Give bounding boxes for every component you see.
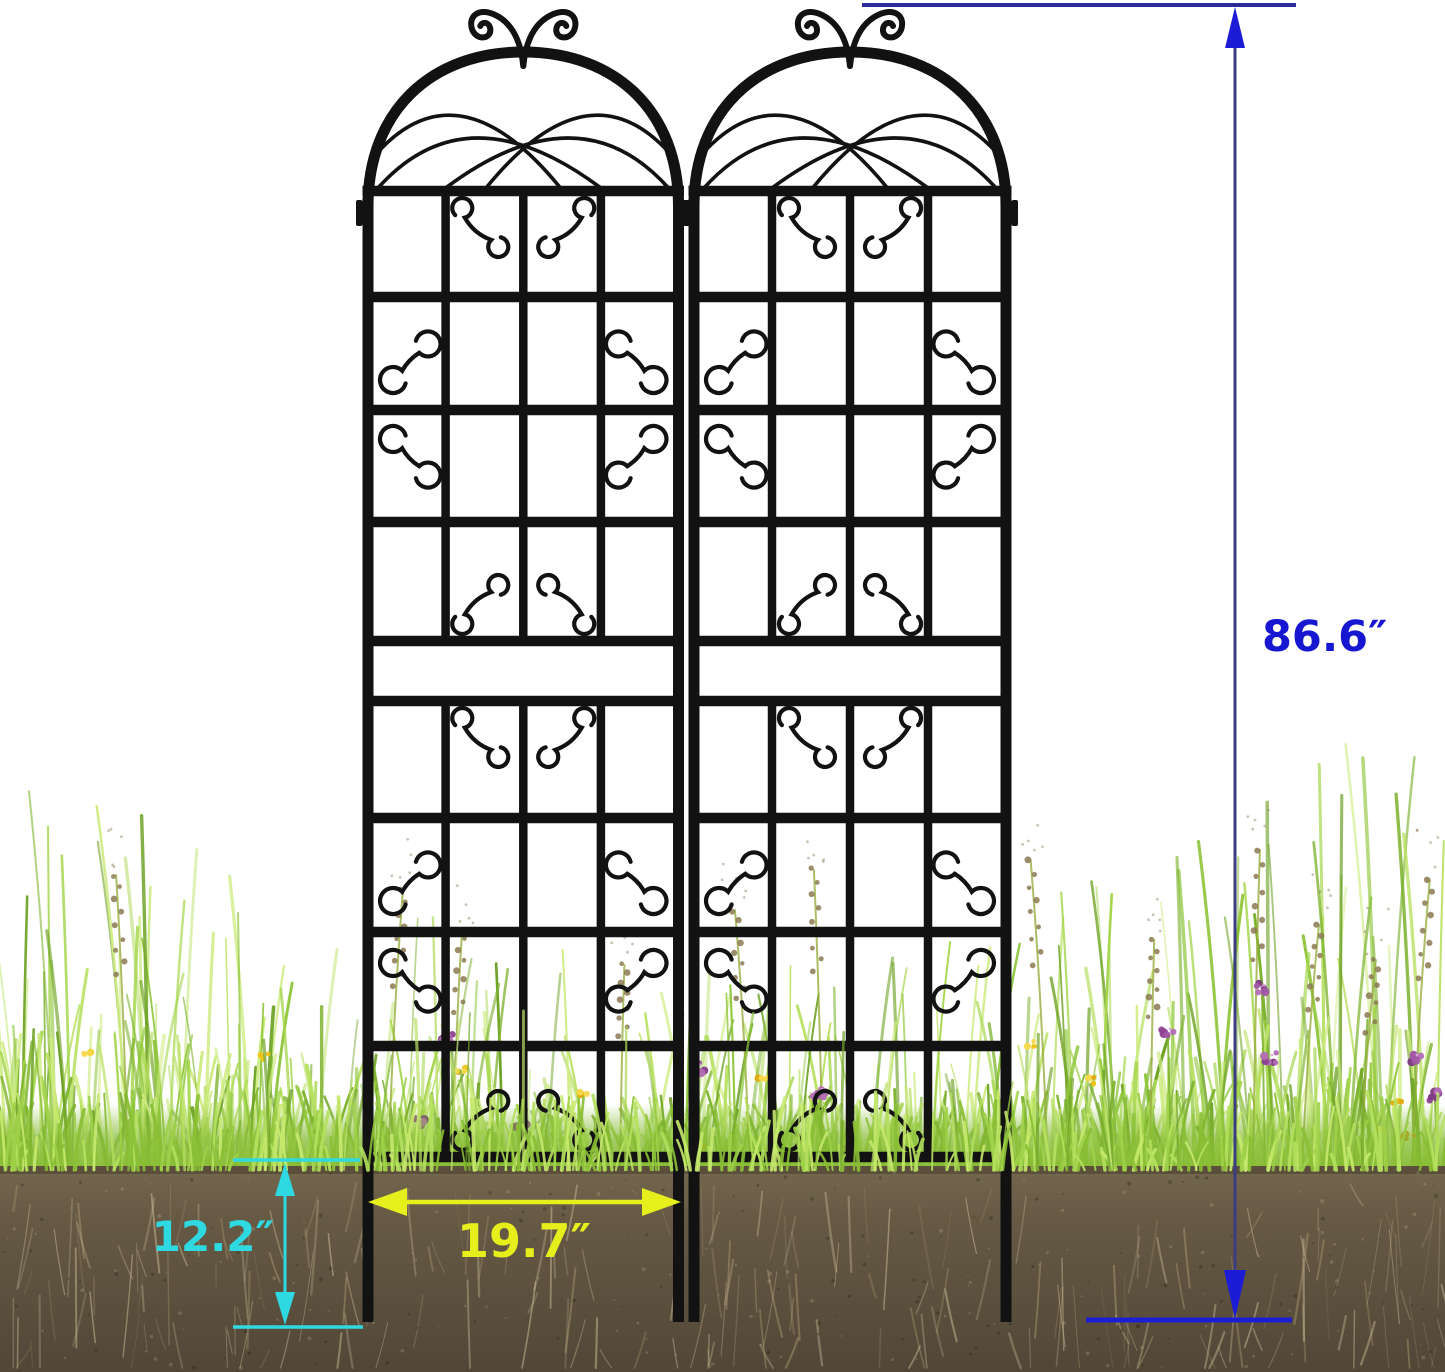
depth-dimension-label: 12.2″	[152, 1212, 274, 1261]
product-dimension-diagram: 86.6″ 12.2″ 19.7″	[0, 0, 1445, 1372]
width-dimension-label: 19.7″	[457, 1214, 591, 1268]
height-dimension-label: 86.6″	[1262, 612, 1387, 662]
connector-hook	[682, 200, 689, 226]
connector-hook	[356, 200, 363, 226]
soil-layer	[0, 1166, 1445, 1372]
scene-canvas	[0, 0, 1445, 1372]
arrowhead-up-icon	[1225, 7, 1245, 48]
connector-hook	[1012, 200, 1019, 226]
